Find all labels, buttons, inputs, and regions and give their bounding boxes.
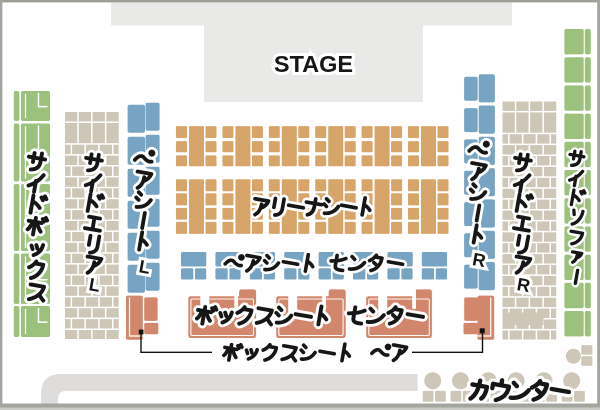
- svg-text:STAGE: STAGE: [274, 51, 353, 77]
